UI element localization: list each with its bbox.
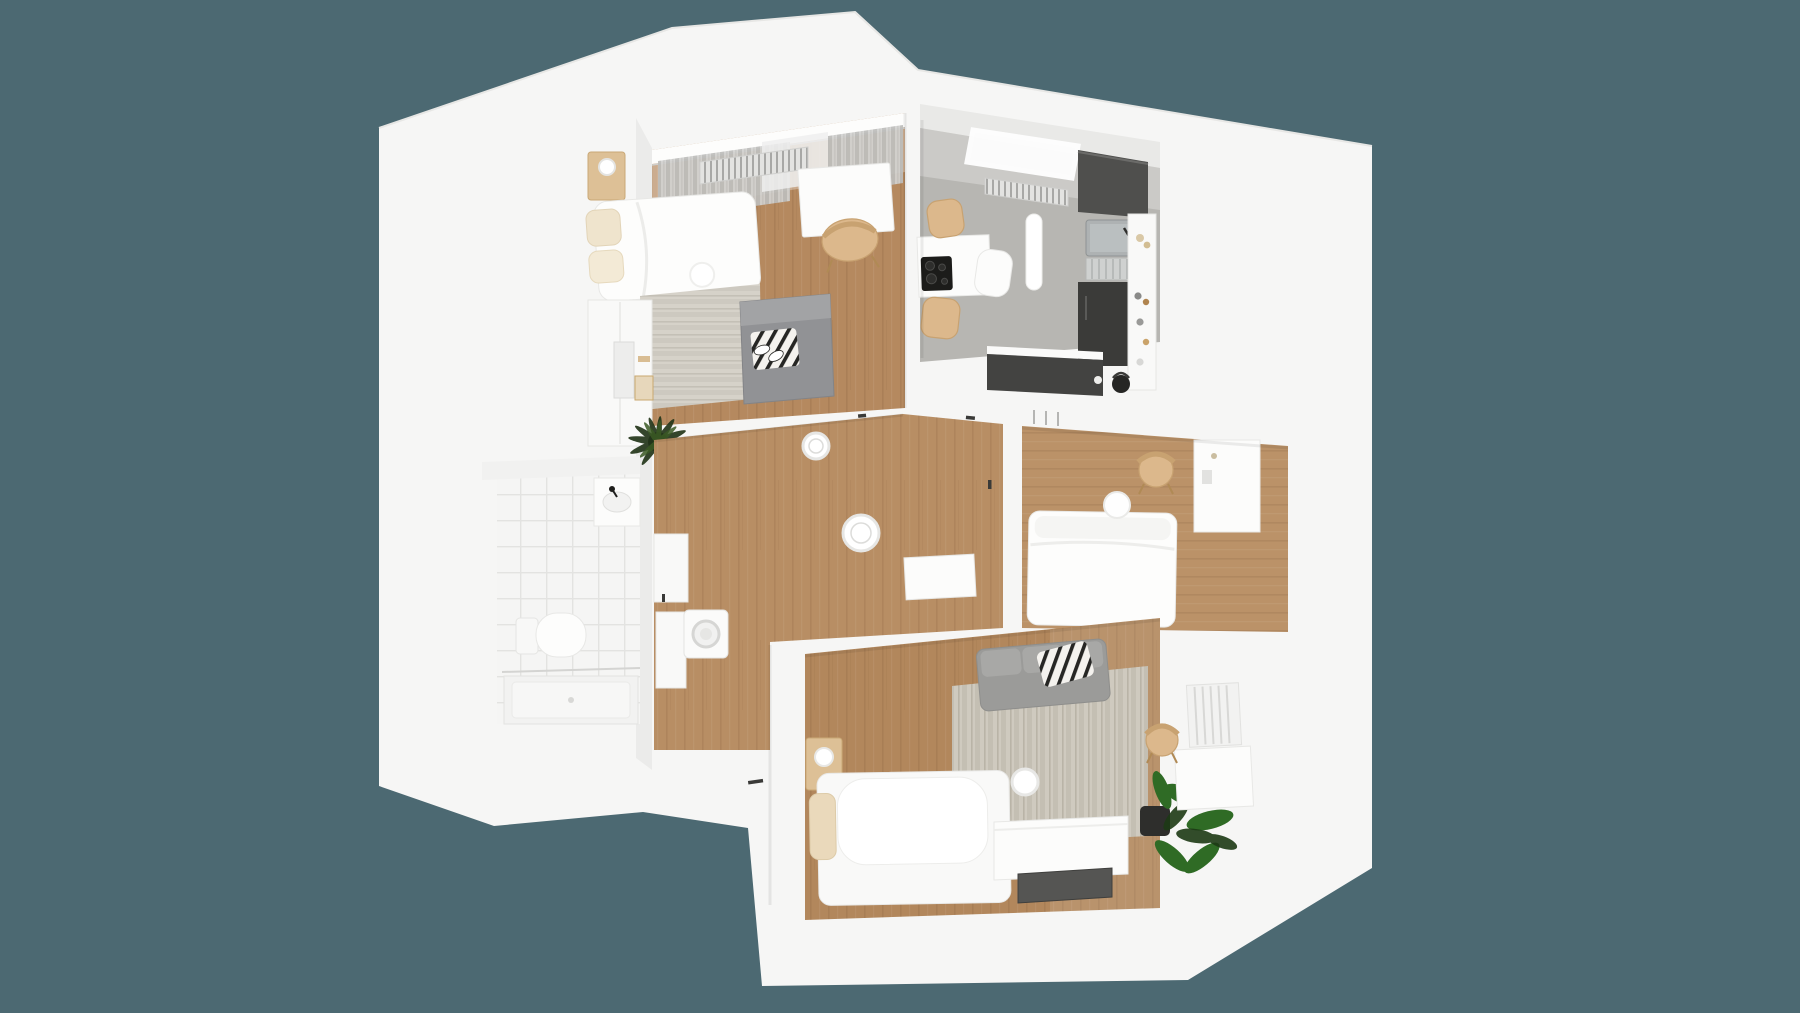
bedroom1-bed [585, 191, 762, 303]
living-bed [809, 770, 1011, 905]
floor-plan-render [0, 0, 1800, 1013]
bedroom1-wood-mirror [635, 376, 653, 400]
kitchen-glass [1094, 376, 1102, 384]
bedroom2-desk-item [1202, 470, 1212, 484]
bedroom1-vanity-tray [638, 356, 650, 362]
bedroom2-side-table [1104, 492, 1130, 518]
kitchen-chair-white [973, 248, 1014, 298]
living-ceiling-light [1012, 769, 1038, 795]
kitchen-wall-shelf [1128, 214, 1156, 390]
hallway-console [904, 554, 976, 600]
kitchen-cooktop [921, 256, 953, 291]
hallway-shelf-handle [662, 594, 665, 602]
bedroom1-bed-pillow-bottom [588, 249, 624, 283]
floor-plan-stage [0, 0, 1800, 1013]
room-bathroom [482, 456, 640, 724]
living-tv-panel [1018, 868, 1112, 903]
living-bed-cushion [809, 793, 836, 859]
bedroom1-futon [740, 294, 834, 404]
kitchen-chair-bottom [920, 296, 961, 340]
bedroom1-vanity-mirror [614, 342, 634, 398]
bedroom1-bed-lantern [689, 262, 715, 288]
living-sofa-cushion-1 [980, 648, 1022, 677]
hallway-ceiling-light-1 [803, 433, 829, 459]
bedroom2-desk-cup [1211, 453, 1217, 459]
bathroom-shower [502, 668, 640, 724]
bedroom2-bed [1027, 511, 1177, 628]
bathroom-drain [568, 697, 574, 703]
kitchen-chair-top [926, 198, 966, 240]
bedroom2-desk [1194, 440, 1260, 532]
living-sofa [976, 638, 1111, 711]
kitchen-dish-rack [1086, 258, 1132, 280]
door-handle-hall [988, 480, 992, 489]
hallway-ceiling-light-2 [843, 515, 879, 551]
living-radiator [1186, 683, 1241, 748]
kitchen-ceiling-light [1026, 214, 1042, 290]
bathroom-toilet [516, 613, 586, 657]
bedroom1-bed-pillow-top [585, 208, 621, 246]
living-desk [1174, 746, 1253, 810]
hallway-shelf [654, 534, 688, 602]
room-kitchen [917, 104, 1160, 396]
kitchen-sink-basin [1090, 224, 1128, 252]
room-bedroom-2 [1022, 410, 1288, 632]
living-nightstand-lamp [815, 748, 833, 766]
bedroom2-bed-pillow [1035, 516, 1171, 540]
bedroom1-nightstand-lamp [599, 159, 615, 175]
bedroom1-bed-mattress [593, 191, 762, 302]
bathroom-sink [594, 478, 640, 526]
living-bed-pillow [837, 777, 988, 866]
